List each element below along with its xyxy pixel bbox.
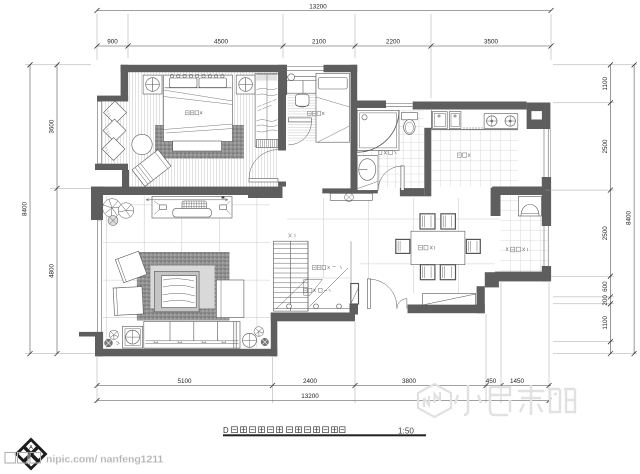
svg-text:4800: 4800 — [49, 264, 56, 279]
svg-text:3600: 3600 — [49, 119, 56, 134]
svg-text:3500: 3500 — [484, 39, 499, 46]
svg-text:600: 600 — [602, 281, 609, 292]
svg-text:8400: 8400 — [22, 202, 29, 217]
svg-text:13200: 13200 — [309, 4, 327, 11]
svg-text:2500: 2500 — [602, 226, 609, 241]
svg-text:13200: 13200 — [301, 393, 319, 400]
svg-text:nipic.com/ nanfeng1211: nipic.com/ nanfeng1211 — [46, 455, 163, 466]
svg-text:8400: 8400 — [626, 211, 633, 226]
svg-text:1450: 1450 — [510, 378, 525, 385]
svg-text:900: 900 — [107, 39, 118, 46]
svg-text:5100: 5100 — [177, 378, 192, 385]
svg-text:2200: 2200 — [386, 39, 401, 46]
svg-text:200: 200 — [602, 295, 609, 306]
svg-text:450: 450 — [486, 378, 497, 385]
svg-text:4500: 4500 — [214, 39, 229, 46]
svg-text:1100: 1100 — [602, 316, 609, 330]
svg-text:D: D — [223, 426, 229, 435]
svg-text:1100: 1100 — [602, 77, 609, 91]
svg-text:2100: 2100 — [312, 39, 327, 46]
svg-text:A: A — [29, 445, 33, 451]
svg-text:2500: 2500 — [602, 139, 609, 154]
svg-text:2400: 2400 — [303, 378, 318, 385]
svg-text:1:50: 1:50 — [398, 427, 414, 436]
svg-text:3800: 3800 — [402, 378, 417, 385]
